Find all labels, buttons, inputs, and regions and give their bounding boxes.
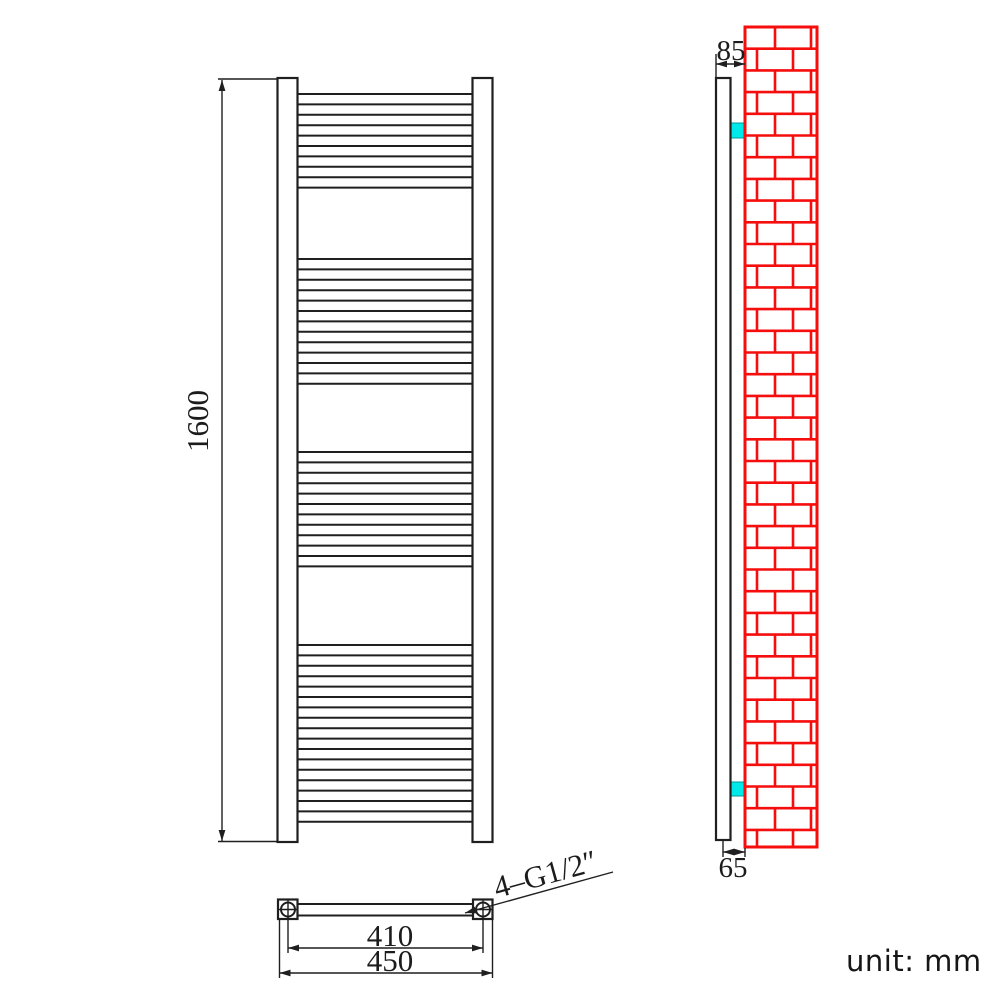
dimension-arrowhead (280, 970, 291, 977)
dim-bottom-depth-label: 65 (719, 852, 748, 884)
dim-outer-width-label: 450 (367, 943, 414, 978)
dimension-arrowhead (472, 945, 483, 952)
side-view (716, 78, 731, 840)
thread-spec-label: 4–G1/2″ (489, 843, 600, 905)
dimension-arrowhead (288, 945, 299, 952)
plan-view (278, 900, 493, 920)
front-view (278, 78, 493, 842)
dimension-arrowhead (219, 830, 226, 841)
unit-label: unit: mm (846, 944, 1001, 978)
dim-depth-label: 85 (717, 35, 746, 67)
dim-height-label: 1600 (180, 390, 215, 452)
drawing-svg: 1600 410 450 85 65 4–G1/2″ (0, 0, 1001, 1001)
vertical-post (473, 78, 493, 842)
radiator-side-profile (716, 78, 731, 840)
dimension-arrowhead (482, 970, 493, 977)
dimension-arrowhead (219, 80, 226, 91)
radiator-technical-drawing: 1600 410 450 85 65 4–G1/2″ unit: mm (0, 0, 1001, 1001)
vertical-post (278, 78, 298, 842)
wall-bracket (731, 123, 746, 138)
wall-bracket (731, 782, 746, 796)
brick-wall (731, 27, 818, 847)
